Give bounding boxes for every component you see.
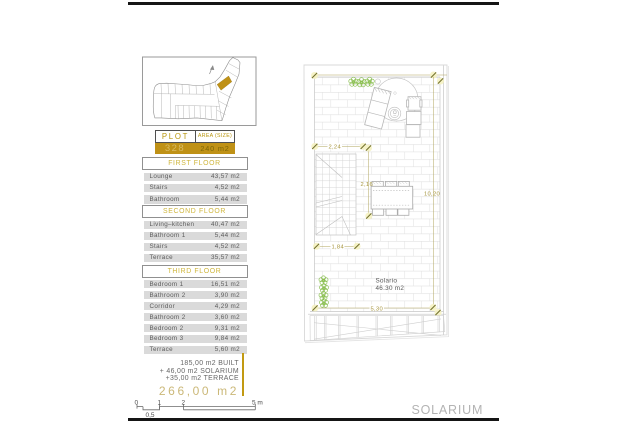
svg-text:10,20: 10,20: [424, 192, 440, 198]
svg-text:2,24: 2,24: [329, 145, 342, 151]
svg-text:46.30 m2: 46.30 m2: [376, 285, 405, 292]
svg-text:5,30: 5,30: [371, 306, 383, 312]
svg-text:2,16: 2,16: [361, 182, 373, 188]
svg-text:Solario: Solario: [376, 278, 398, 285]
svg-text:1,84: 1,84: [332, 245, 345, 251]
